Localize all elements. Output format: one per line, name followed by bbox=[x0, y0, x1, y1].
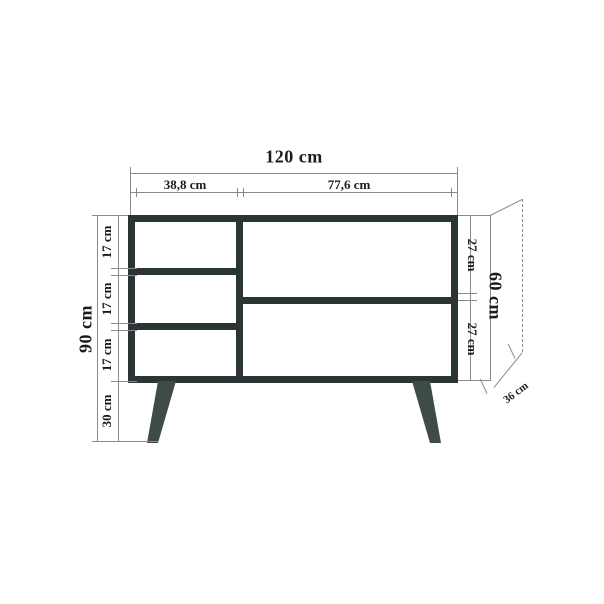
dim-leg-height-label: 30 cm bbox=[99, 395, 115, 428]
dim-line-total-width bbox=[130, 173, 458, 174]
extension-line-top-left bbox=[92, 215, 128, 216]
dim-tick bbox=[111, 323, 137, 324]
dim-depth-label: 36 cm bbox=[501, 380, 530, 406]
dim-tick bbox=[111, 381, 137, 382]
dim-shelf3-label: 17 cm bbox=[99, 339, 115, 372]
right-leg bbox=[408, 381, 443, 443]
technical-drawing-canvas: 120 cm 38,8 cm 77,6 cm 90 cm 17 cm 17 cm… bbox=[0, 0, 604, 604]
dim-total-height-label: 90 cm bbox=[76, 305, 97, 353]
dim-tick-depth-near bbox=[480, 379, 488, 394]
dim-tick bbox=[136, 188, 137, 197]
dim-left-width-label: 38,8 cm bbox=[164, 177, 207, 193]
dim-tick bbox=[111, 330, 137, 331]
vertical-divider-panel bbox=[236, 222, 243, 376]
dim-line-total-height bbox=[97, 215, 98, 441]
extension-line-bottom-right bbox=[458, 380, 491, 381]
dim-line-section-widths bbox=[130, 192, 458, 193]
dim-tick bbox=[111, 268, 137, 269]
extension-line-right bbox=[457, 167, 458, 215]
dim-shelf2-label: 17 cm bbox=[99, 283, 115, 316]
dim-compartment1-label: 27 cm bbox=[464, 239, 480, 272]
depth-projection-top-edge bbox=[490, 199, 523, 216]
dim-compartment2-label: 27 cm bbox=[464, 323, 480, 356]
dim-shelf1-label: 17 cm bbox=[99, 226, 115, 259]
left-shelf-bottom bbox=[135, 323, 236, 330]
dim-total-width-label: 120 cm bbox=[265, 147, 322, 168]
extension-line-top-right bbox=[458, 215, 491, 216]
dim-body-height-label: 60 cm bbox=[485, 272, 506, 320]
dim-tick bbox=[243, 188, 244, 197]
dim-tick bbox=[451, 188, 452, 197]
extension-line-floor bbox=[92, 441, 158, 442]
extension-line-mid-right-b bbox=[458, 300, 477, 301]
left-shelf-top bbox=[135, 268, 236, 275]
dim-tick bbox=[111, 275, 137, 276]
extension-line-left bbox=[130, 167, 131, 215]
dim-right-width-label: 77,6 cm bbox=[328, 177, 371, 193]
dim-tick bbox=[237, 188, 238, 197]
right-shelf bbox=[243, 297, 451, 304]
dim-tick-depth-far bbox=[508, 344, 516, 359]
dim-line-left-segments bbox=[118, 215, 119, 441]
left-leg bbox=[145, 381, 178, 443]
extension-line-mid-right-a bbox=[458, 293, 477, 294]
back-edge-dashed-line bbox=[522, 199, 523, 352]
